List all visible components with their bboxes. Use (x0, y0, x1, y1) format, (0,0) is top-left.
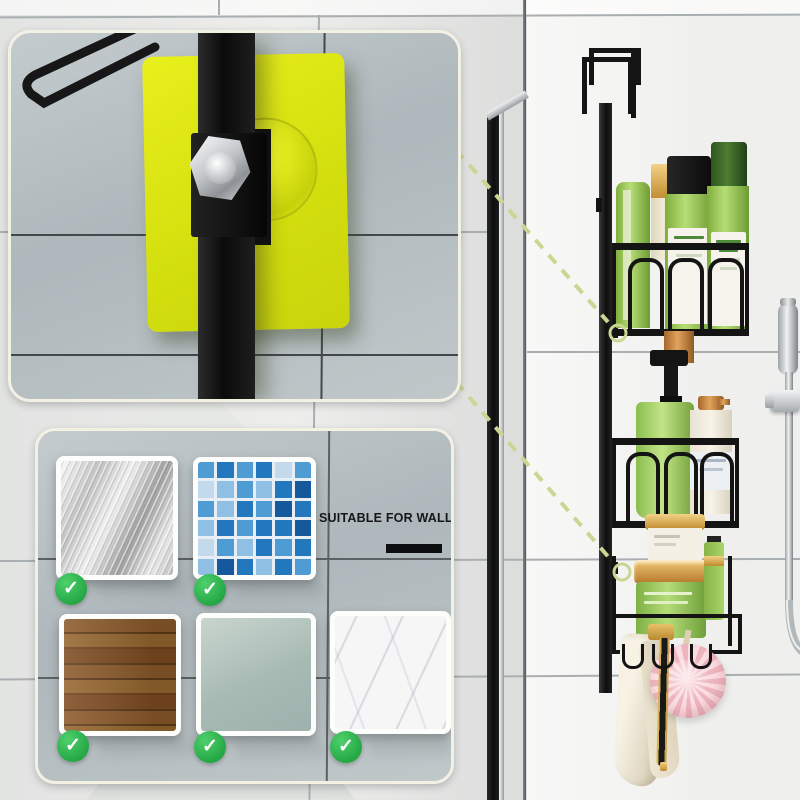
mosaic-cell (198, 520, 214, 536)
mosaic-cell (295, 520, 311, 536)
swatch-blue-mosaic-tile (193, 457, 316, 580)
mosaic-cell (256, 559, 272, 575)
suitable-for-walls-title: SUITABLE FOR WALLS (319, 511, 454, 525)
mosaic-cell (198, 501, 214, 517)
mosaic-cell (256, 481, 272, 497)
title-underline (386, 544, 442, 553)
mosaic-cell (198, 559, 214, 575)
mosaic-cell (295, 501, 311, 517)
mosaic-cell (275, 539, 291, 555)
checkmark-icon: ✓ (194, 574, 226, 606)
mosaic-cell (217, 559, 233, 575)
swatch-marble (330, 611, 451, 734)
swatch-stainless-steel (56, 456, 178, 580)
mosaic-cell (237, 539, 253, 555)
mosaic-cell (237, 559, 253, 575)
swatch-wood (59, 614, 181, 736)
hex-bolt-dome (204, 152, 236, 184)
mosaic-cell (256, 520, 272, 536)
checkmark-icon: ✓ (330, 731, 362, 763)
reflection-smudge (96, 579, 188, 597)
mosaic-cell (295, 539, 311, 555)
mosaic-cell (198, 481, 214, 497)
mosaic-cell (217, 462, 233, 478)
mosaic-cell (237, 520, 253, 536)
checkmark-icon: ✓ (55, 573, 87, 605)
mosaic-cell (256, 501, 272, 517)
mosaic-cell (217, 539, 233, 555)
mosaic-cell (295, 481, 311, 497)
mosaic-cell (237, 462, 253, 478)
bathroom-product-scene: ✓ ✓ ✓ ✓ ✓ SUITABLE FOR WALLS (0, 0, 800, 800)
mosaic-grid (198, 462, 311, 575)
mosaic-cell (275, 520, 291, 536)
reflection-smudge (368, 737, 453, 757)
mount-detail-panel (8, 30, 461, 402)
reflection-smudge (234, 581, 326, 599)
mosaic-cell (275, 462, 291, 478)
mosaic-cell (217, 481, 233, 497)
mosaic-cell (275, 559, 291, 575)
reflection-smudge (234, 739, 329, 759)
reflection-smudge (98, 737, 198, 757)
suitability-panel: ✓ ✓ ✓ ✓ ✓ SUITABLE FOR WALLS (35, 428, 454, 784)
mosaic-cell (237, 501, 253, 517)
swatch-frosted-glass (196, 613, 316, 736)
mosaic-cell (275, 481, 291, 497)
mosaic-cell (295, 559, 311, 575)
mosaic-cell (256, 462, 272, 478)
mosaic-cell (198, 462, 214, 478)
mosaic-cell (198, 539, 214, 555)
checkmark-icon: ✓ (194, 731, 226, 763)
mosaic-cell (217, 520, 233, 536)
checkmark-icon: ✓ (57, 730, 89, 762)
mosaic-cell (295, 462, 311, 478)
mosaic-cell (217, 501, 233, 517)
mosaic-cell (237, 481, 253, 497)
mosaic-cell (256, 539, 272, 555)
mosaic-cell (275, 501, 291, 517)
